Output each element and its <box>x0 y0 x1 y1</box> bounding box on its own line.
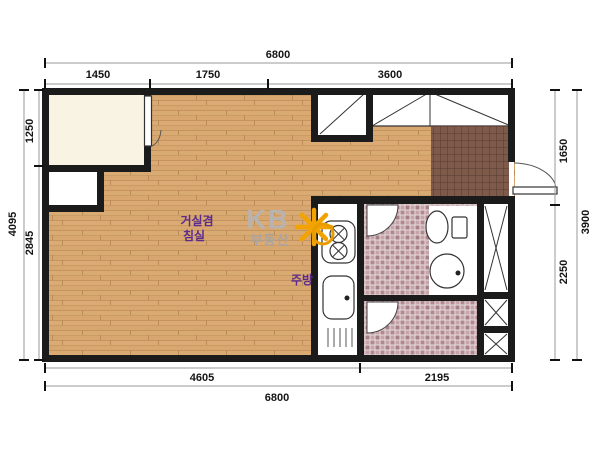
kitchen-label: 주방 <box>291 273 313 287</box>
floorplan-canvas: 6800 1450 1750 3600 4095 1250 2845 1650 … <box>0 0 600 449</box>
shoe-closet <box>371 91 512 126</box>
dim-right-seg-1650: 1650 <box>558 139 570 163</box>
floorplan-drawing <box>0 0 600 449</box>
kb-star-icon <box>297 210 333 244</box>
dim-bottom-seg-4605: 4605 <box>190 372 214 384</box>
entrance-door <box>509 162 557 196</box>
balcony-room <box>45 91 149 169</box>
dim-top-seg-1450: 1450 <box>86 69 110 81</box>
dim-right-total: 3900 <box>580 210 592 234</box>
dim-left-seg-1250: 1250 <box>24 119 36 143</box>
basin-icon <box>430 254 464 288</box>
dim-top-total: 6800 <box>266 49 290 61</box>
kb-watermark-sub: 부동산 <box>251 230 290 249</box>
wardrobe-column <box>481 202 512 358</box>
storage-box <box>47 170 100 208</box>
dim-right-seg-2250: 2250 <box>558 260 570 284</box>
dim-left-seg-2845: 2845 <box>24 231 36 255</box>
living-room-label-line1: 거실겸 <box>180 214 213 228</box>
dim-top-seg-3600: 3600 <box>378 69 402 81</box>
dim-bottom-seg-2195: 2195 <box>425 372 449 384</box>
entrance-tile <box>431 126 512 201</box>
living-room-label-line2: 침실 <box>183 229 205 243</box>
dim-bottom-total: 6800 <box>265 392 289 404</box>
dim-left-total: 4095 <box>7 212 19 236</box>
closet-top <box>316 91 368 138</box>
dim-top-seg-1750: 1750 <box>196 69 220 81</box>
